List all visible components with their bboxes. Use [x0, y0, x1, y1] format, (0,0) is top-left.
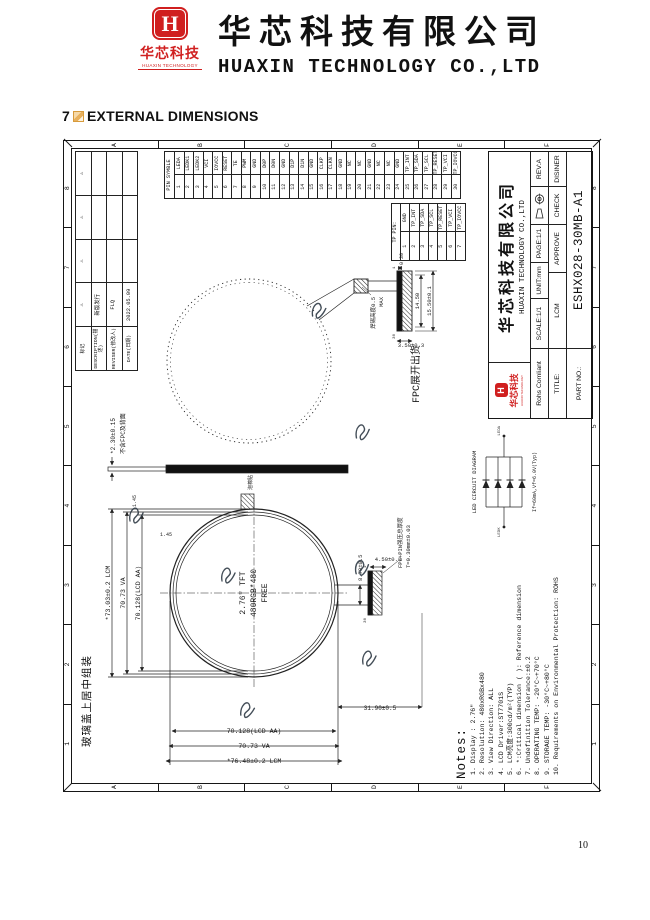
- company-name-en: HUAXIN TECHNOLOGY CO.,LTD: [218, 56, 546, 78]
- company-names: 华芯科技有限公司 HUAXIN TECHNOLOGY CO.,LTD: [218, 5, 546, 78]
- section-bullet-icon: [73, 111, 84, 122]
- company-name-cn: 华芯科技有限公司: [218, 5, 546, 53]
- section-title: 7EXTERNAL DIMENSIONS: [62, 108, 259, 124]
- check-mark-scribbles: [130, 303, 376, 718]
- sheet-overlay: [64, 139, 601, 791]
- company-header: H 华芯科技 HUAXIN TECHNOLOGY 华芯科技有限公司 HUAXIN…: [138, 5, 546, 78]
- drawing-sheet: 12345678 12345678 ABCDEF ABCDEF 玻璃盖上居中组装…: [63, 140, 600, 792]
- section-number: 7: [62, 108, 70, 124]
- datasheet-page: H 华芯科技 HUAXIN TECHNOLOGY 华芯科技有限公司 HUAXIN…: [0, 0, 650, 920]
- company-logo: H 华芯科技 HUAXIN TECHNOLOGY: [138, 5, 202, 78]
- logo-name-cn: 华芯科技: [138, 43, 202, 63]
- logo-name-en: HUAXIN TECHNOLOGY: [138, 63, 202, 70]
- section-title-text: EXTERNAL DIMENSIONS: [87, 108, 259, 124]
- logo-h-icon: H: [152, 7, 188, 40]
- page-number: 10: [578, 840, 588, 851]
